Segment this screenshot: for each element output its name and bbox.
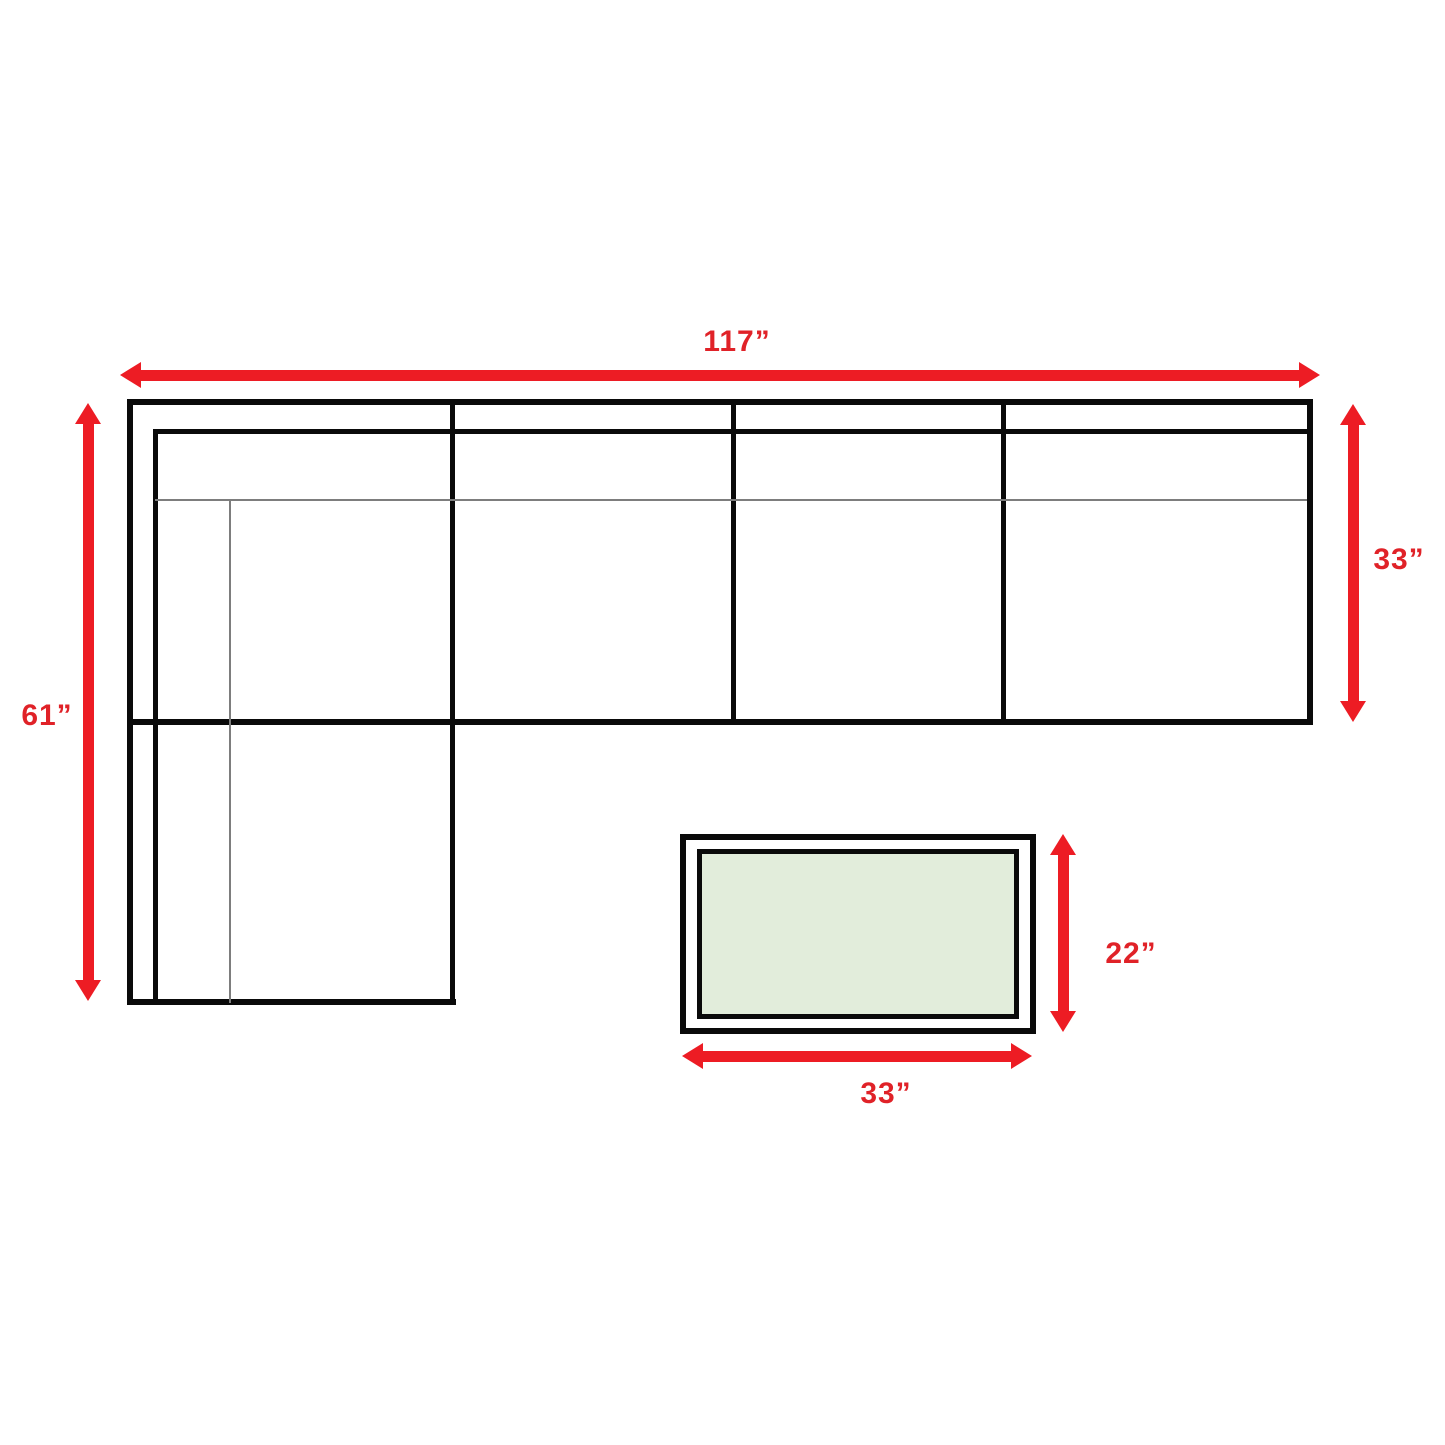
sofa-depth-right-label: 33” bbox=[1373, 543, 1424, 577]
sofa-width-arrow bbox=[140, 370, 1300, 381]
table-width-label: 33” bbox=[860, 1077, 911, 1111]
sofa-depth-left-label: 61” bbox=[21, 699, 72, 733]
coffee-table-outline bbox=[680, 834, 1036, 1034]
sofa-depth-right-arrow bbox=[1348, 424, 1359, 702]
sofa-front-edge bbox=[127, 719, 1313, 725]
table-depth-label: 22” bbox=[1105, 937, 1156, 971]
seat-divider-2 bbox=[731, 399, 736, 725]
furniture-dimension-diagram: 117” 61” 33” 22” 33” bbox=[0, 0, 1445, 1445]
sofa-top-edge bbox=[127, 399, 1313, 405]
table-width-arrow bbox=[702, 1051, 1012, 1062]
sofa-width-label: 117” bbox=[703, 325, 770, 359]
coffee-table-top bbox=[697, 849, 1019, 1019]
sofa-depth-left-arrow bbox=[83, 423, 94, 981]
sofa-left-edge bbox=[127, 399, 133, 1005]
table-depth-arrow bbox=[1058, 854, 1069, 1012]
seat-divider-3 bbox=[1001, 399, 1006, 725]
sofa-right-edge bbox=[1307, 399, 1313, 725]
backrest-inner-line bbox=[153, 429, 1307, 434]
chaise-bottom-edge bbox=[127, 999, 456, 1005]
seat-divider-1 bbox=[450, 399, 455, 1005]
cushion-seam-horizontal bbox=[155, 499, 1307, 501]
armrest-inner-line bbox=[153, 429, 158, 1005]
cushion-seam-vertical bbox=[229, 499, 231, 1003]
